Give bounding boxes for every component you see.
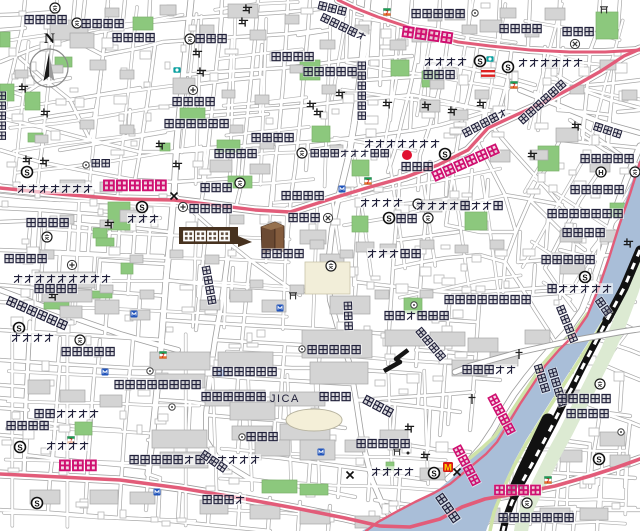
svg-text:N: N [44,31,55,47]
svg-text:JICA: JICA [270,393,300,405]
